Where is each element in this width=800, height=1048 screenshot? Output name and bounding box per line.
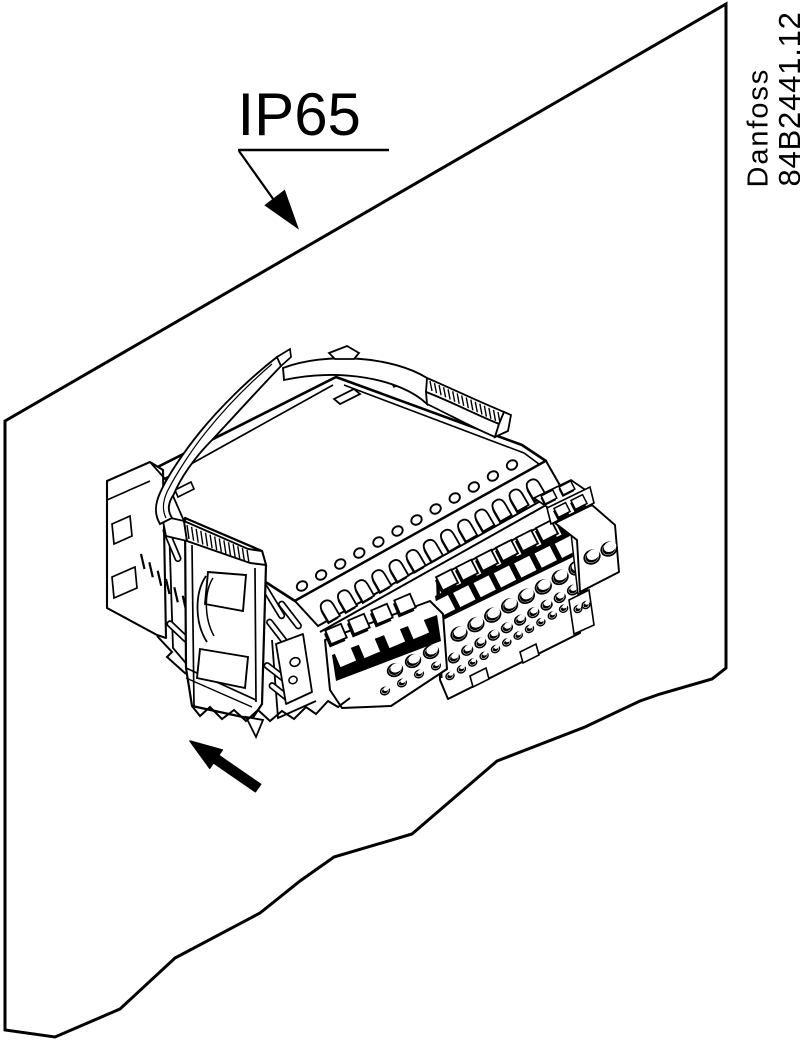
svg-text:Danfoss: Danfoss [743, 68, 775, 188]
svg-text:IP65: IP65 [238, 81, 361, 148]
svg-text:84B2441.12: 84B2441.12 [772, 11, 800, 186]
